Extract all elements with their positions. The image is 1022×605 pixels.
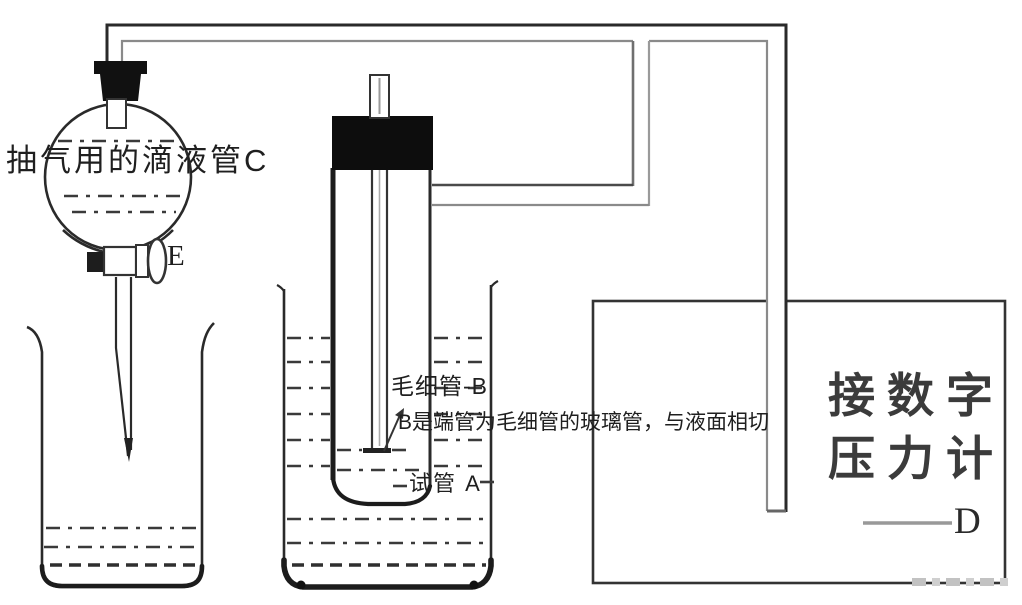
capillary-tip <box>363 448 391 453</box>
test-tube-assembly <box>332 75 433 504</box>
apparatus-diagram: 抽气用的滴液管C E 毛细管-B B是端管为毛细管的玻璃管，与液面相切 试管 A… <box>0 0 1022 605</box>
gauge-label-line1: 接数字 <box>828 370 1018 433</box>
gauge-connector-label: D <box>954 502 981 543</box>
test-tube-label: 试管 A <box>409 472 482 496</box>
funnel-stopper <box>94 61 147 101</box>
beaker-foot <box>470 581 479 590</box>
funnel-inner-tube <box>107 99 126 128</box>
stopcock-collar <box>136 245 148 277</box>
capillary-label: 毛细管-B <box>391 374 488 399</box>
left-beaker-bottom <box>42 566 202 586</box>
funnel-label: 抽气用的滴液管C <box>6 144 269 178</box>
beaker-foot <box>297 581 306 590</box>
stopcock-handle-disc <box>148 239 166 283</box>
left-beaker <box>27 323 214 587</box>
test-tube-stopper <box>332 116 433 170</box>
capillary-note: B是端管为毛细管的玻璃管，与液面相切 <box>398 411 769 434</box>
stopcock-label: E <box>167 241 185 273</box>
stopcock-knob <box>87 252 104 272</box>
stopcock-barrel <box>104 247 136 275</box>
funnel-stem <box>116 277 131 456</box>
gauge-label-line2: 压力计 <box>828 433 1018 496</box>
watermark <box>912 578 1014 586</box>
gauge-label: 接数字 压力计 <box>828 370 1018 496</box>
diagram-linework <box>0 0 1022 605</box>
tube-inner-wall-left <box>122 41 633 61</box>
